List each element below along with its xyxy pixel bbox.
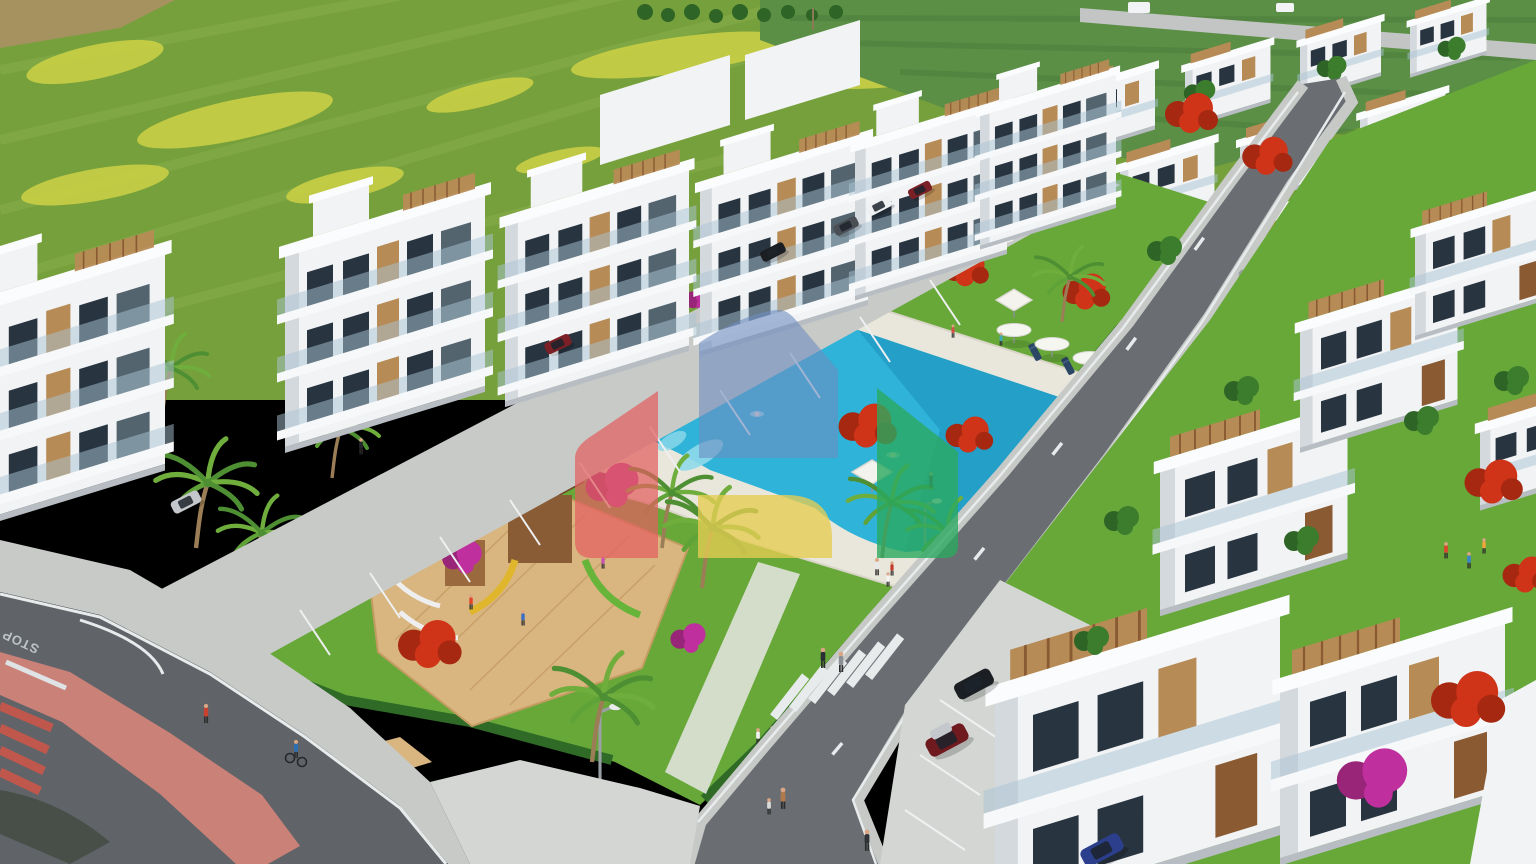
pedestrian xyxy=(359,438,363,454)
distant-truck xyxy=(1276,3,1294,12)
scene-canvas: STOP xyxy=(0,0,1536,864)
watermark-yellow-shape xyxy=(698,495,832,558)
distant-van xyxy=(1128,2,1150,13)
aerial-render: STOP xyxy=(0,0,1536,864)
